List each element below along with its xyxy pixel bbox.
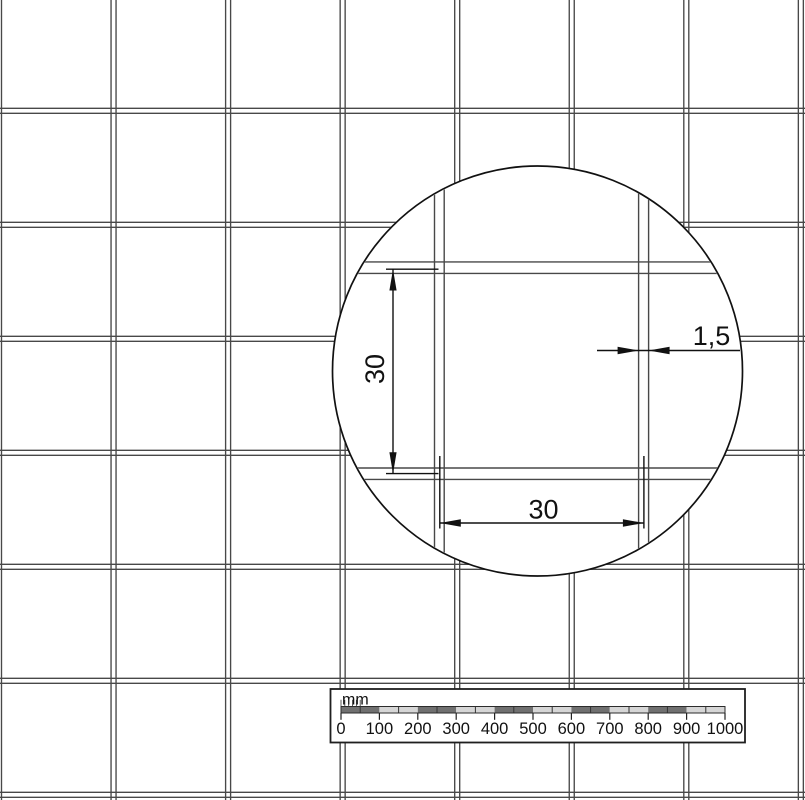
scale-tick-label: 300 (442, 720, 470, 738)
drawing-svg: 30 30 1,5 mm 010020030040050060070080090… (0, 0, 805, 800)
scale-band (341, 707, 725, 714)
vertical-dim-label: 30 (360, 354, 390, 384)
mesh-technical-drawing: 30 30 1,5 mm 010020030040050060070080090… (0, 0, 805, 800)
scale-tick-label: 600 (558, 720, 586, 738)
scale-tick-label: 400 (481, 720, 509, 738)
horizontal-dim-label: 30 (528, 495, 558, 525)
scale-tick-label: 800 (634, 720, 662, 738)
scale-tick-label: 0 (336, 720, 345, 738)
scale-tick-label: 1000 (707, 720, 744, 738)
scale-bar: mm 01002003004005006007008009001000 (331, 689, 746, 743)
scale-tick-label: 100 (366, 720, 394, 738)
scale-tick-label: 200 (404, 720, 432, 738)
scale-unit-label: mm (342, 692, 369, 709)
scale-tick-label: 700 (596, 720, 624, 738)
scale-tick-label: 500 (519, 720, 547, 738)
wire-thickness-label: 1,5 (693, 321, 731, 351)
detail-view: 30 30 1,5 (331, 164, 744, 578)
scale-tick-label: 900 (673, 720, 701, 738)
